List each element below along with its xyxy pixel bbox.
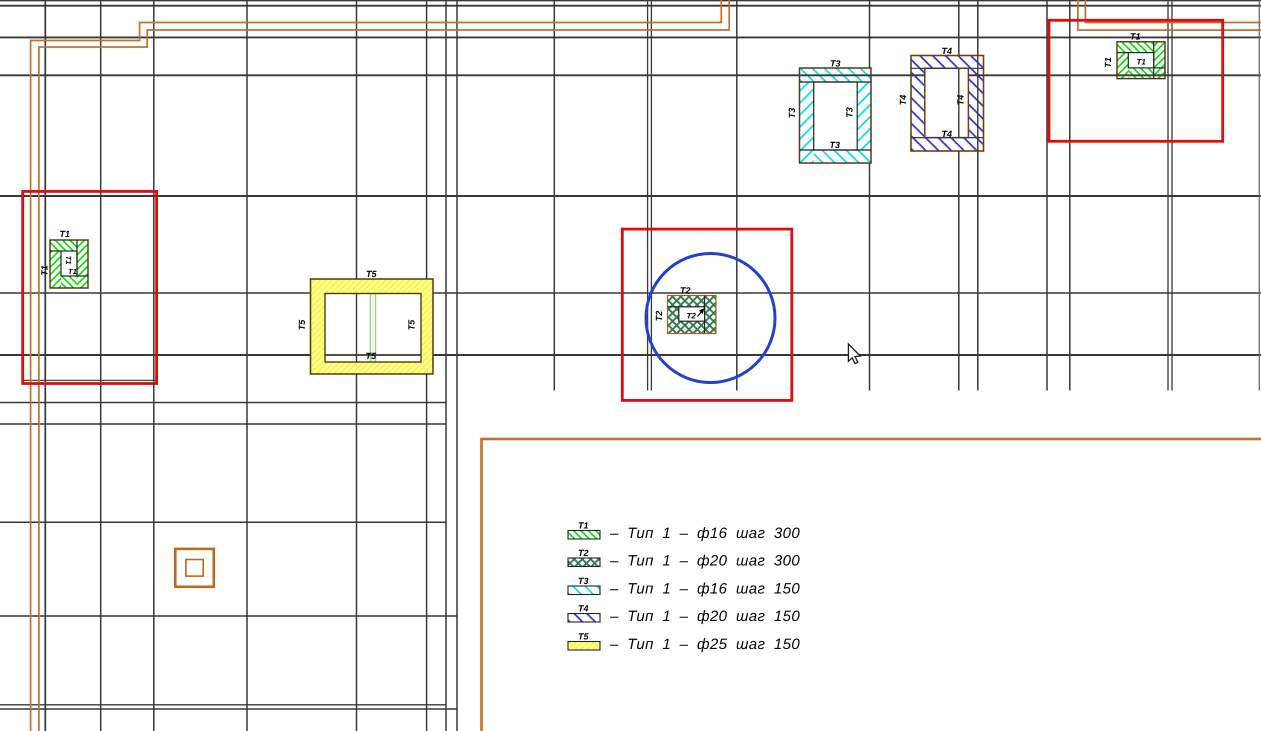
svg-text:Т5: Т5 [366, 351, 377, 361]
svg-text:Т3: Т3 [787, 108, 797, 119]
svg-text:Т4: Т4 [898, 95, 908, 106]
svg-text:Т1: Т1 [1137, 58, 1147, 67]
svg-text:Т1: Т1 [1130, 32, 1141, 42]
svg-text:Т1: Т1 [68, 267, 77, 276]
svg-text:Т3: Т3 [578, 576, 589, 586]
svg-text:– Тип 1 – ф20 шаг 300: – Тип 1 – ф20 шаг 300 [609, 553, 800, 570]
svg-text:Т1: Т1 [40, 265, 50, 276]
svg-text:Т2: Т2 [687, 312, 697, 321]
svg-text:Т1: Т1 [64, 256, 73, 265]
svg-text:Т1: Т1 [1103, 57, 1113, 68]
svg-text:– Тип 1 – ф20 шаг 150: – Тип 1 – ф20 шаг 150 [609, 608, 800, 625]
svg-text:– Тип 1 – ф25 шаг 150: – Тип 1 – ф25 шаг 150 [609, 636, 800, 653]
svg-text:Т2: Т2 [578, 548, 589, 558]
svg-text:Т5: Т5 [366, 269, 377, 279]
svg-text:– Тип 1 – ф16 шаг 150: – Тип 1 – ф16 шаг 150 [609, 581, 800, 598]
svg-text:Т3: Т3 [830, 59, 841, 69]
svg-text:Т1: Т1 [60, 229, 71, 239]
svg-text:Т1: Т1 [578, 521, 589, 531]
svg-text:Т4: Т4 [956, 95, 966, 106]
svg-text:Т5: Т5 [297, 319, 307, 330]
svg-text:Т5: Т5 [578, 632, 589, 642]
svg-text:Т2: Т2 [654, 311, 664, 322]
svg-text:Т2: Т2 [680, 286, 691, 296]
svg-text:Т3: Т3 [845, 107, 855, 118]
svg-text:– Тип 1 – ф16 шаг 300: – Тип 1 – ф16 шаг 300 [609, 525, 800, 542]
svg-text:Т4: Т4 [942, 129, 953, 139]
svg-text:Т4: Т4 [942, 46, 953, 56]
svg-text:Т4: Т4 [578, 604, 589, 614]
svg-text:Т5: Т5 [407, 319, 417, 330]
svg-text:Т3: Т3 [830, 140, 841, 150]
